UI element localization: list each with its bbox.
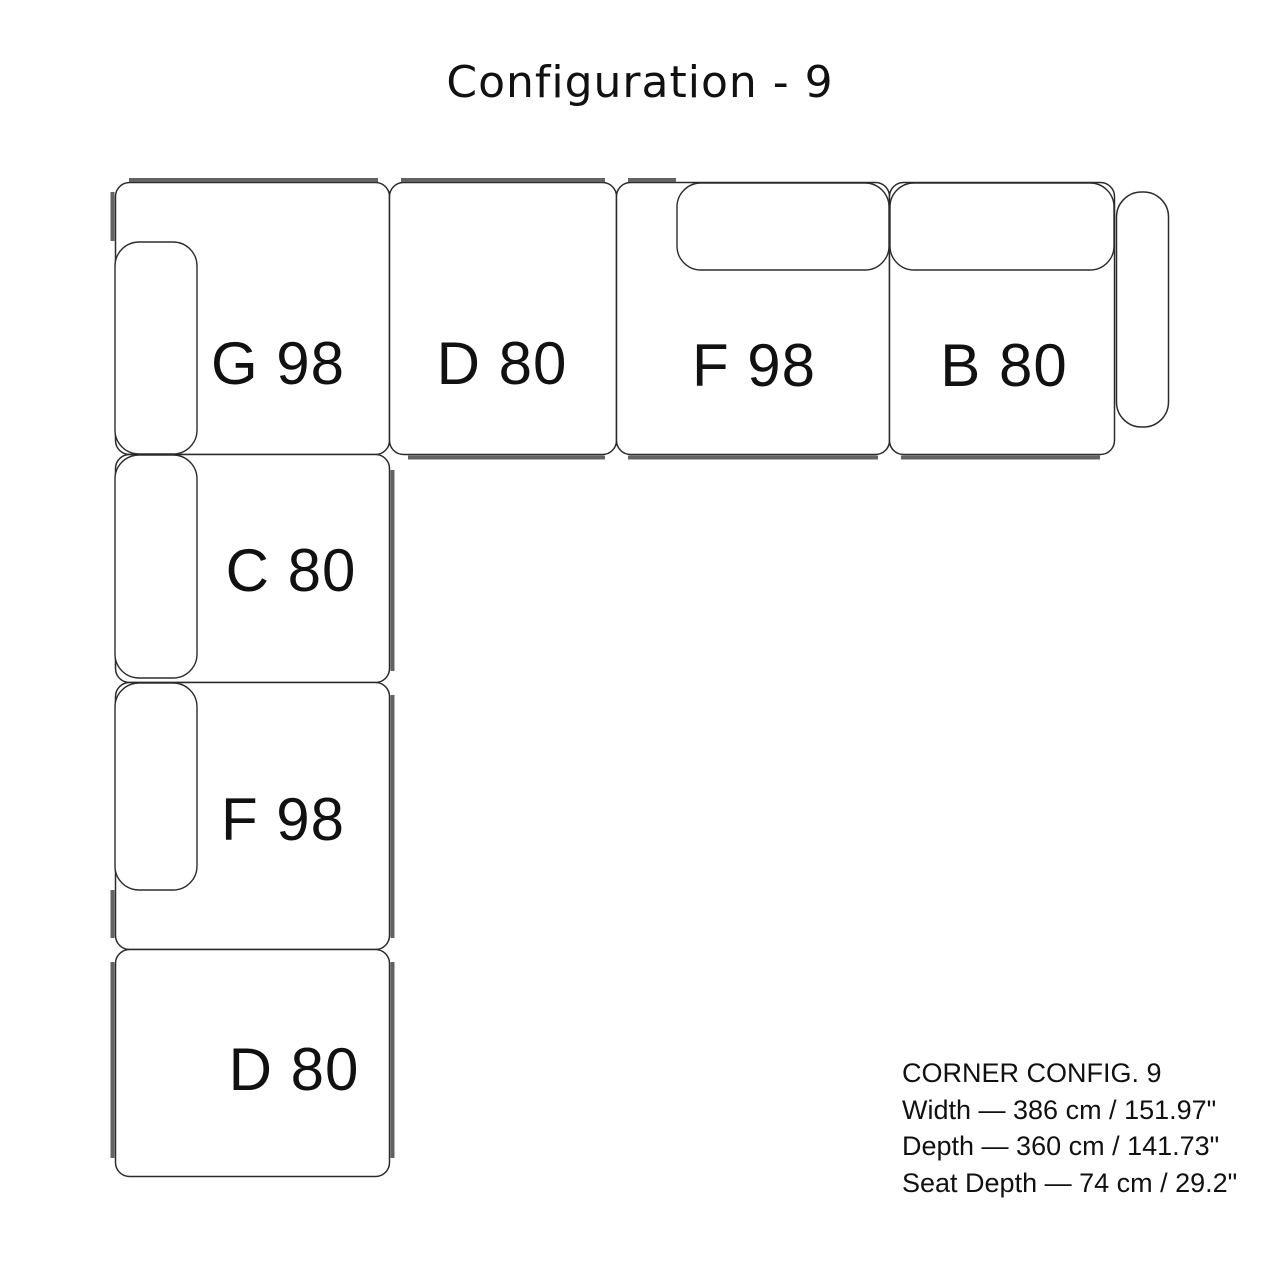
specs-depth: Depth — 360 cm / 141.73" (902, 1128, 1237, 1165)
specs-width: Width — 386 cm / 151.97" (902, 1092, 1237, 1129)
specs-seat-depth: Seat Depth — 74 cm / 29.2" (902, 1165, 1237, 1202)
specs-heading: CORNER CONFIG. 9 (902, 1055, 1237, 1092)
module-label-c80: C 80 (226, 541, 357, 601)
module-d80-top-outline (390, 183, 617, 455)
cushion-c80 (115, 455, 197, 678)
module-label-b80: B 80 (940, 336, 1067, 396)
cushion-g98 (115, 242, 197, 454)
specs-block: CORNER CONFIG. 9 Width — 386 cm / 151.97… (902, 1055, 1237, 1201)
cushion-b80 (890, 183, 1114, 270)
module-label-f98-top: F 98 (692, 336, 816, 396)
cushion-f98-left (115, 683, 197, 890)
module-label-d80-top: D 80 (437, 334, 568, 394)
cushion-f98-top (677, 183, 889, 270)
module-label-f98-left: F 98 (221, 790, 345, 850)
armrest-outline (1117, 192, 1169, 427)
module-label-g98: G 98 (211, 334, 345, 394)
module-label-d80-bottom: D 80 (229, 1040, 360, 1100)
configuration-page: Configuration - 9 (0, 0, 1280, 1280)
